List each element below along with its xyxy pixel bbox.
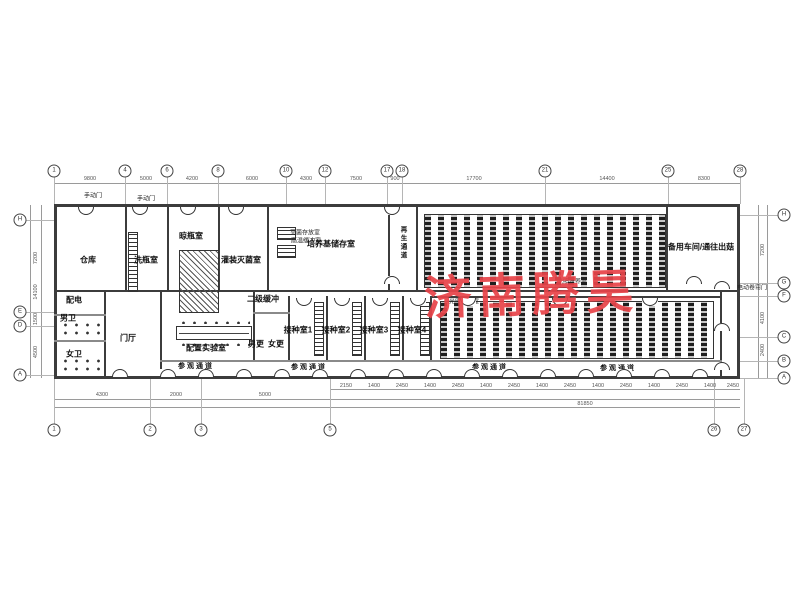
grid-line bbox=[125, 177, 126, 204]
grid-line bbox=[218, 177, 219, 204]
door-symbol bbox=[296, 298, 312, 306]
door-symbol bbox=[132, 207, 148, 215]
grid-bubble-top: 6 bbox=[161, 165, 174, 178]
grid-line bbox=[740, 177, 741, 204]
dim-bottom-small: 1400 bbox=[424, 383, 436, 389]
dim-line-left-1 bbox=[30, 205, 31, 378]
womens-toilet-label: 女卫 bbox=[66, 349, 82, 360]
door-symbol bbox=[616, 369, 632, 377]
grid-bubble-bottom: 27 bbox=[738, 424, 751, 437]
dim-left: 14100 bbox=[33, 284, 39, 299]
dim-bottom-small: 2450 bbox=[508, 383, 520, 389]
grid-line bbox=[668, 177, 669, 204]
dim-top: 4300 bbox=[300, 176, 312, 182]
door-symbol bbox=[112, 369, 128, 377]
grid-bubble-right: C bbox=[778, 331, 791, 344]
grid-bubble-top: 25 bbox=[662, 165, 675, 178]
wall-v bbox=[104, 291, 106, 377]
dim-top: 8300 bbox=[698, 176, 710, 182]
grid-bubble-top: 17 bbox=[381, 165, 394, 178]
door-symbol bbox=[578, 369, 594, 377]
door-symbol bbox=[714, 281, 730, 289]
dim-line-bottom-overall bbox=[54, 407, 740, 408]
dim-line-right-2 bbox=[767, 205, 768, 378]
inoculation-room-2-label: 接种室2 bbox=[322, 325, 350, 336]
wall-v bbox=[160, 291, 162, 377]
grid-line bbox=[325, 177, 326, 204]
lab-stools bbox=[176, 318, 250, 324]
floor-plan-drawing: 14681012171821252812352627HEDAHGFCBA 980… bbox=[0, 0, 800, 600]
dim-line-top bbox=[54, 183, 740, 184]
manual-door-2-label: 手动门 bbox=[137, 194, 155, 203]
mens-toilet-label: 男卫 bbox=[60, 313, 76, 324]
grid-bubble-top: 18 bbox=[396, 165, 409, 178]
dim-top: 6000 bbox=[246, 176, 258, 182]
grid-bubble-right: A bbox=[778, 372, 791, 385]
dim-top: 9800 bbox=[84, 176, 96, 182]
warehouse-label: 仓库 bbox=[80, 255, 96, 266]
door-symbol bbox=[464, 369, 480, 377]
dim-right: 7200 bbox=[760, 244, 766, 256]
door-symbol bbox=[384, 207, 400, 215]
door-symbol bbox=[228, 207, 244, 215]
manual-door-1-label: 手动门 bbox=[84, 191, 102, 200]
door-symbol bbox=[334, 298, 350, 306]
grid-bubble-right: H bbox=[778, 209, 791, 222]
door-symbol bbox=[388, 369, 404, 377]
dim-top: 17700 bbox=[466, 176, 481, 182]
grid-bubble-right: F bbox=[778, 290, 791, 303]
filling-sterilization-room-label: 灌装灭菌室 bbox=[221, 255, 261, 266]
grid-bubble-top: 1 bbox=[48, 165, 61, 178]
grid-bubble-left: E bbox=[14, 306, 27, 319]
door-symbol bbox=[372, 298, 388, 306]
wall-v bbox=[167, 205, 169, 291]
door-symbol bbox=[692, 369, 708, 377]
wall-v bbox=[416, 205, 418, 291]
dim-left: 7200 bbox=[33, 252, 39, 264]
wall-corridor-top bbox=[160, 360, 722, 362]
grid-bubble-top: 10 bbox=[280, 165, 293, 178]
dim-left: 4500 bbox=[33, 346, 39, 358]
dim-bottom-small: 1400 bbox=[704, 383, 716, 389]
dim-top: 5000 bbox=[140, 176, 152, 182]
door-symbol bbox=[384, 276, 400, 284]
door-symbol bbox=[686, 276, 702, 284]
bottle-drying-room-label: 晾瓶室 bbox=[179, 231, 203, 242]
door-symbol bbox=[350, 369, 366, 377]
watermark-text: 济南腾昊 bbox=[423, 252, 641, 328]
dim-bottom-small: 2450 bbox=[396, 383, 408, 389]
grid-line bbox=[26, 375, 54, 376]
grid-line bbox=[286, 177, 287, 204]
entrance-hall-label: 门厅 bbox=[120, 333, 136, 344]
dim-top: 14400 bbox=[599, 176, 614, 182]
grid-bubble-left: A bbox=[14, 369, 27, 382]
grid-bubble-top: 8 bbox=[212, 165, 225, 178]
door-symbol bbox=[714, 323, 730, 331]
dim-line-bottom-small bbox=[330, 389, 740, 390]
inoculation-room-1-label: 接种室1 bbox=[284, 325, 312, 336]
dim-top: 900 bbox=[390, 176, 399, 182]
wall-v bbox=[267, 205, 269, 291]
prep-lab-label: 配置实验室 bbox=[186, 343, 226, 354]
grid-line bbox=[26, 220, 54, 221]
dim-bottom-small: 2450 bbox=[676, 383, 688, 389]
dim-bottom-small: 2450 bbox=[564, 383, 576, 389]
door-symbol bbox=[426, 369, 442, 377]
wall-v bbox=[125, 205, 127, 291]
door-symbol bbox=[642, 298, 658, 306]
wall-toilet bbox=[54, 340, 106, 342]
spare-workshop-label: 备用车间/通往出菇 bbox=[668, 242, 734, 253]
grid-line bbox=[26, 312, 54, 313]
grid-bubble-right: G bbox=[778, 277, 791, 290]
dim-bottom-mid: 5000 bbox=[259, 392, 271, 398]
grid-bubble-top: 28 bbox=[734, 165, 747, 178]
grid-line bbox=[201, 379, 202, 424]
dim-right: 2400 bbox=[760, 344, 766, 356]
secondary-buffer-label: 二级缓冲 bbox=[247, 294, 279, 305]
grid-line bbox=[330, 379, 331, 424]
lab-bench bbox=[176, 326, 252, 340]
inoculation-room-4-label: 接种室4 bbox=[398, 325, 426, 336]
grid-bubble-top: 4 bbox=[119, 165, 132, 178]
dim-top: 7500 bbox=[350, 176, 362, 182]
dim-bottom-small: 1400 bbox=[480, 383, 492, 389]
door-symbol bbox=[236, 369, 252, 377]
dim-bottom-small: 1400 bbox=[536, 383, 548, 389]
grid-line bbox=[26, 326, 54, 327]
door-symbol bbox=[502, 369, 518, 377]
wall-buffer bbox=[253, 312, 290, 314]
door-symbol bbox=[160, 369, 176, 377]
grid-line bbox=[387, 177, 388, 204]
mens-changing-label: 男更 bbox=[248, 339, 264, 350]
grid-line bbox=[402, 177, 403, 204]
grid-bubble-bottom: 26 bbox=[708, 424, 721, 437]
electric-roller-door-label: 电动卷帘门 bbox=[737, 283, 767, 292]
door-symbol bbox=[274, 369, 290, 377]
door-symbol bbox=[198, 369, 214, 377]
door-symbol bbox=[714, 362, 730, 370]
power-room-label: 配电 bbox=[66, 295, 82, 306]
grid-bubble-left: H bbox=[14, 214, 27, 227]
grid-line bbox=[545, 177, 546, 204]
bottle-washing-room-label: 洗瓶室 bbox=[134, 255, 158, 266]
door-symbol bbox=[78, 207, 94, 215]
grid-line bbox=[150, 379, 151, 424]
dim-bottom-small: 2450 bbox=[727, 383, 739, 389]
dim-bottom-small: 1400 bbox=[648, 383, 660, 389]
dim-bottom-small: 2450 bbox=[452, 383, 464, 389]
dim-right: 4100 bbox=[760, 312, 766, 324]
regen-corridor-label: 再生通道 bbox=[397, 226, 407, 260]
grid-bubble-top: 12 bbox=[319, 165, 332, 178]
bottle-drying-rack bbox=[179, 250, 219, 313]
grid-bubble-bottom: 5 bbox=[324, 424, 337, 437]
dim-line-left-2 bbox=[41, 205, 42, 378]
grid-bubble-bottom: 1 bbox=[48, 424, 61, 437]
grid-bubble-bottom: 2 bbox=[144, 424, 157, 437]
grid-line bbox=[54, 379, 55, 424]
door-symbol bbox=[312, 369, 328, 377]
dim-bottom-overall: 81850 bbox=[577, 401, 592, 407]
dim-left: 1500 bbox=[33, 313, 39, 325]
grid-bubble-right: B bbox=[778, 355, 791, 368]
dim-top: 4200 bbox=[186, 176, 198, 182]
grid-line bbox=[54, 177, 55, 204]
dim-bottom-mid: 4300 bbox=[96, 392, 108, 398]
door-symbol bbox=[540, 369, 556, 377]
autoclave-2 bbox=[277, 245, 296, 258]
grid-bubble-left: D bbox=[14, 320, 27, 333]
door-symbol bbox=[654, 369, 670, 377]
grid-bubble-bottom: 3 bbox=[195, 424, 208, 437]
dim-line-right-1 bbox=[758, 205, 759, 378]
door-symbol bbox=[180, 207, 196, 215]
dim-bottom-small: 1400 bbox=[592, 383, 604, 389]
womens-changing-label: 女更 bbox=[268, 339, 284, 350]
dim-bottom-small: 1400 bbox=[368, 383, 380, 389]
dim-line-bottom-mid bbox=[54, 399, 740, 400]
inoculation-room-3-label: 接种室3 bbox=[360, 325, 388, 336]
dim-bottom-small: 2450 bbox=[620, 383, 632, 389]
dim-bottom-mid: 2000 bbox=[170, 392, 182, 398]
grid-bubble-top: 21 bbox=[539, 165, 552, 178]
grid-line bbox=[167, 177, 168, 204]
high-temp-buffer-label: 高温缓冲室 bbox=[291, 236, 321, 245]
dim-bottom-small: 2150 bbox=[340, 383, 352, 389]
grid-line bbox=[744, 379, 745, 424]
